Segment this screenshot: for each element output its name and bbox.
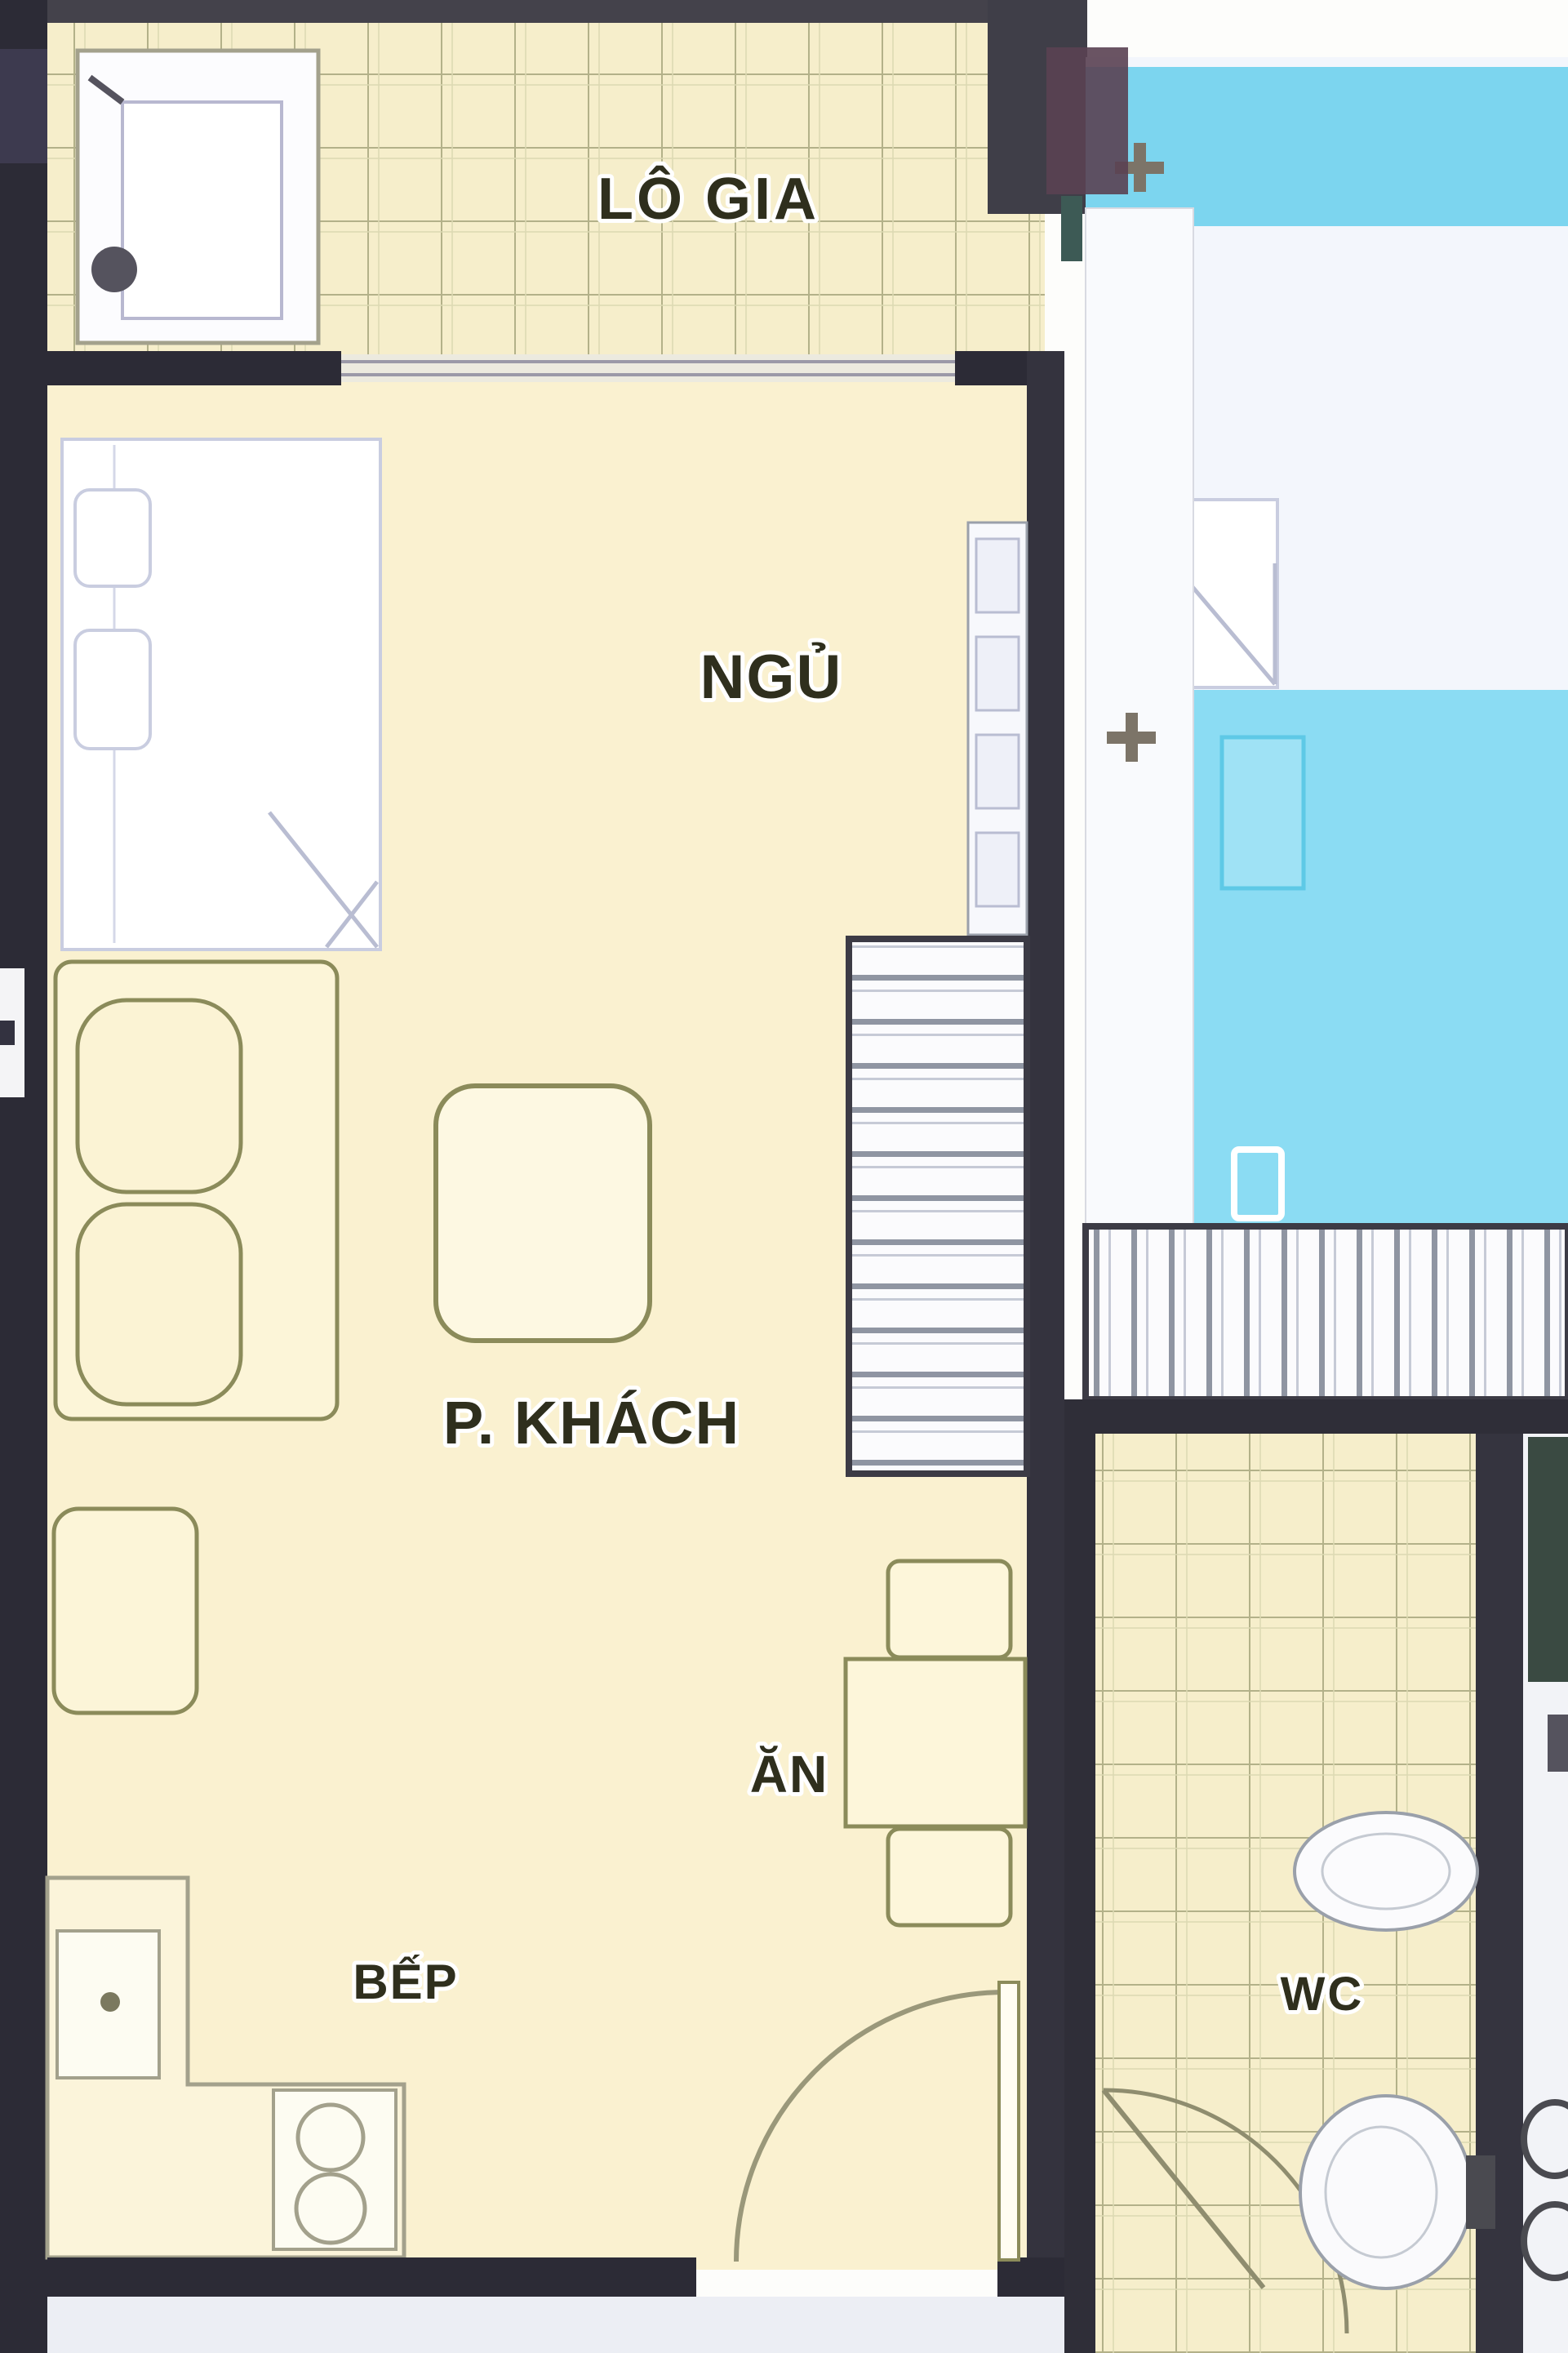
pillow <box>75 490 150 586</box>
plus-icon <box>1126 713 1138 762</box>
cabinet-box <box>976 637 1019 710</box>
washing-machine-knob <box>91 247 137 292</box>
cabinet-box <box>976 833 1019 906</box>
wc-room: WC <box>1064 1399 1568 2353</box>
pillow <box>75 630 150 749</box>
dining-chair <box>888 1829 1011 1925</box>
adjacent-wall-block <box>1528 1437 1568 1682</box>
wall-tick <box>1061 196 1082 261</box>
left-outer-wall <box>0 0 47 2353</box>
neighbour-wall-strip <box>1086 208 1193 1400</box>
loggia-window-wall <box>47 351 1045 385</box>
bottom-wall-left <box>47 2257 696 2297</box>
wall-segment <box>47 351 341 385</box>
left-wall-notch-tick <box>0 1021 15 1045</box>
dining-label: ĂN <box>750 1745 828 1804</box>
plus-icon <box>1134 143 1146 192</box>
sofa-cushion <box>78 1204 241 1404</box>
left-wall-shade <box>0 49 47 163</box>
bottom-wall-right <box>997 2257 1064 2297</box>
floor-plan-drawing: NGỦ P. KHÁCH ĂN BẾP <box>0 0 1568 2353</box>
adjacent-fixture <box>1548 1715 1568 1772</box>
dining-table <box>846 1659 1025 1826</box>
sofa-cushion <box>78 1000 241 1192</box>
bed <box>62 439 380 950</box>
bedroom-label: NGỦ <box>700 643 843 712</box>
cabinet-box <box>976 539 1019 612</box>
toilet-tank <box>1466 2155 1495 2229</box>
window-band <box>341 354 955 382</box>
loggia-label: LÔ GIA <box>597 166 820 232</box>
center-divider-wall <box>1027 351 1064 2266</box>
shelf-column <box>849 939 1027 1474</box>
neighbour-bedroom <box>1046 47 1568 1400</box>
blue-nightstand <box>1222 737 1304 888</box>
top-wall <box>33 0 1086 23</box>
sink-drain <box>100 1992 120 2012</box>
wc-left-wall <box>1064 1399 1095 2353</box>
entry-door-leaf <box>999 1982 1019 2260</box>
wardrobe-band <box>1086 1226 1568 1399</box>
wc-label: WC <box>1281 1968 1365 2021</box>
wc-top-wall <box>1064 1399 1568 1434</box>
wall-junction-block <box>1046 47 1128 194</box>
wash-basin <box>1295 1813 1477 1930</box>
blue-wall-band <box>1086 67 1568 226</box>
exterior-band <box>47 2297 1064 2353</box>
cabinet-box <box>976 735 1019 808</box>
coffee-table <box>436 1086 650 1341</box>
living-room-label: P. KHÁCH <box>443 1389 740 1457</box>
washing-machine-drum <box>122 102 282 318</box>
washing-machine <box>78 51 318 343</box>
sofa <box>56 962 337 1419</box>
dining-chair <box>888 1561 1011 1657</box>
floor-plan-page: NGỦ P. KHÁCH ĂN BẾP <box>0 0 1568 2353</box>
kitchen-label: BẾP <box>353 1955 458 2009</box>
side-table <box>54 1509 197 1713</box>
